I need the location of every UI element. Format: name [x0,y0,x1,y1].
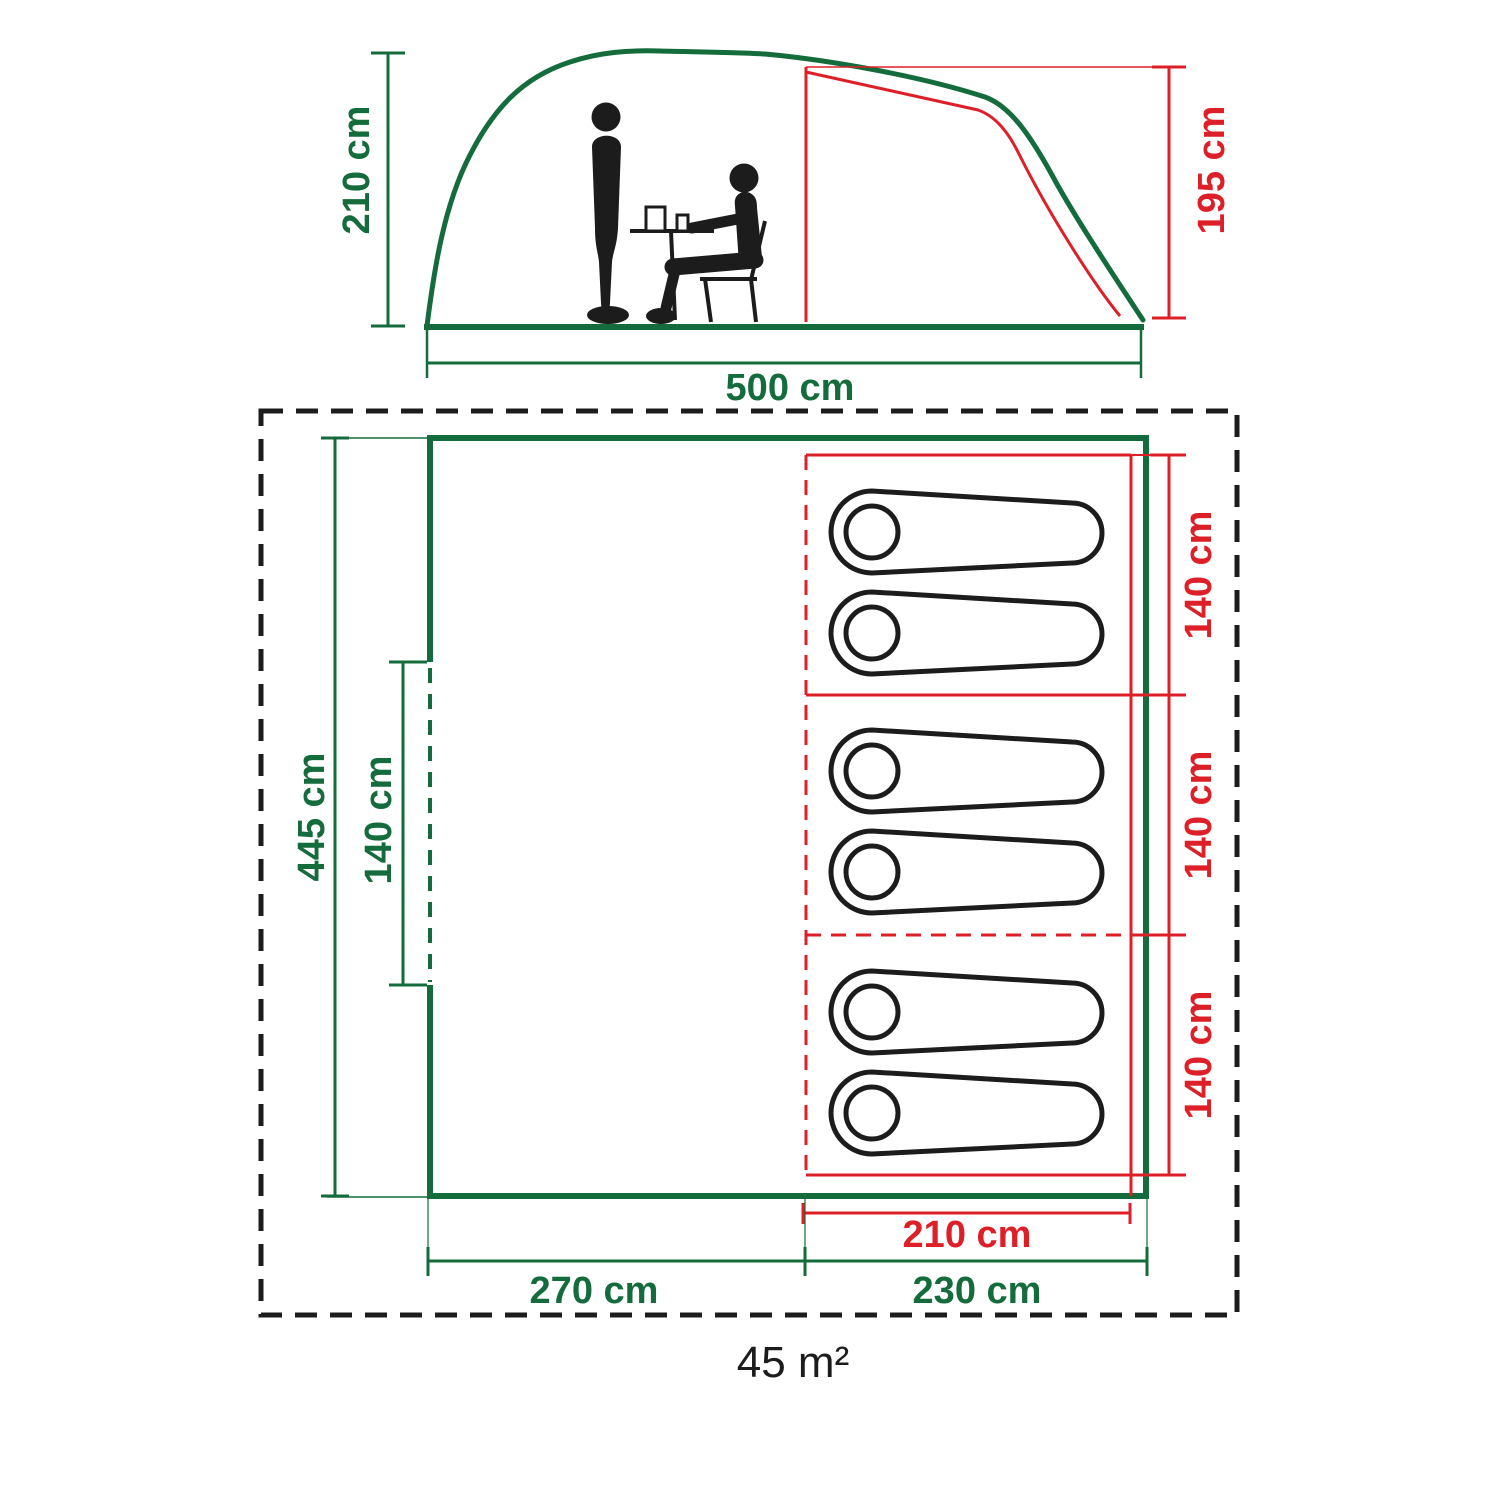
chair-rear-leg [751,279,756,322]
bedroom-length-label: 210 cm [903,1214,1032,1256]
sleeping-bag-pillow [846,986,898,1038]
standing-person-foot [587,306,629,324]
bedroom-section-2-label: 140 cm [1178,751,1220,880]
standing-person-body [592,136,621,311]
seated-person-thigh [673,260,755,267]
standing-person-head [592,103,621,132]
carton-icon [646,207,665,231]
inner-height-dimension [1152,67,1186,318]
bedroom-section-3-label: 140 cm [1178,991,1220,1120]
bedroom-area-width-label: 230 cm [913,1270,1042,1312]
total-area-label: 45 m² [737,1338,849,1387]
sleeping-bag-pillow [846,846,898,898]
floor-plan: 445 cm 140 cm [261,411,1237,1387]
width-dimensions [428,1198,1147,1276]
depth-label: 445 cm [291,753,333,882]
door-width-label: 140 cm [358,756,400,885]
sleeping-bag-pillow [846,506,898,558]
inner-height-label: 195 cm [1191,106,1233,235]
tent-dimensions-diagram: 210 cm 195 cm 500 cm 445 [0,0,1500,1500]
chair-front-leg [705,279,711,322]
side-view: 210 cm 195 cm 500 cm [336,51,1233,409]
seated-person-silhouette [646,164,762,325]
inner-tent-roof-line [806,72,1120,316]
sleeping-bag-pillow [846,607,898,659]
bedroom-section-1-label: 140 cm [1178,511,1220,640]
standing-person-silhouette [587,103,629,325]
living-area-width-label: 270 cm [530,1270,659,1312]
outer-height-label: 210 cm [336,106,378,235]
length-label: 500 cm [726,367,855,409]
sleeping-bag-pillow [846,1087,898,1139]
seated-person-foot [646,308,676,324]
seated-person-head [730,164,759,193]
cup-icon [677,215,688,231]
sleeping-bags [831,491,1102,1154]
diagram-canvas: 210 cm 195 cm 500 cm 445 [0,0,1500,1500]
sleeping-bag-pillow [846,745,898,797]
